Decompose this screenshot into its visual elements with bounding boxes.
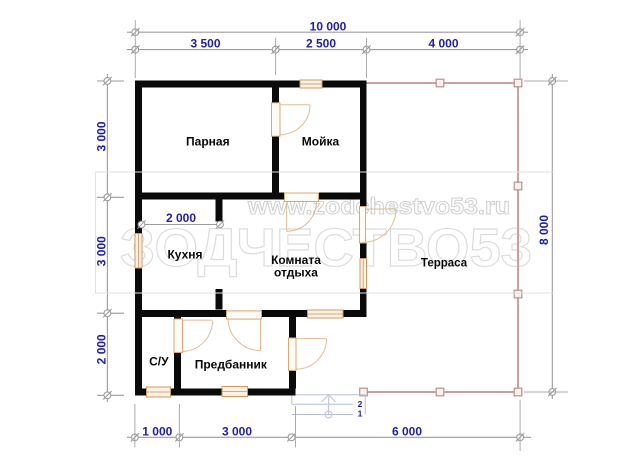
svg-text:4 000: 4 000 [428, 36, 458, 50]
svg-text:Терраса: Терраса [421, 258, 468, 270]
svg-text:Кухня: Кухня [167, 247, 202, 261]
svg-text:3 000: 3 000 [95, 236, 109, 266]
svg-text:3 500: 3 500 [190, 36, 220, 50]
svg-text:отдыха: отдыха [274, 265, 318, 279]
svg-text:1: 1 [358, 408, 363, 418]
svg-text:2 000: 2 000 [95, 334, 109, 364]
svg-text:8 000: 8 000 [537, 215, 551, 245]
svg-text:С/У: С/У [149, 355, 169, 369]
svg-text:6 000: 6 000 [392, 425, 422, 439]
svg-text:Предбанник: Предбанник [195, 358, 268, 372]
svg-text:3 000: 3 000 [95, 121, 109, 151]
svg-text:3 000: 3 000 [222, 425, 252, 439]
svg-text:10 000: 10 000 [310, 20, 347, 34]
svg-text:2 500: 2 500 [306, 36, 336, 50]
svg-text:Парная: Парная [186, 135, 230, 149]
svg-text:2 000: 2 000 [166, 211, 196, 225]
svg-text:1 000: 1 000 [142, 425, 172, 439]
svg-text:Мойка: Мойка [302, 135, 340, 149]
